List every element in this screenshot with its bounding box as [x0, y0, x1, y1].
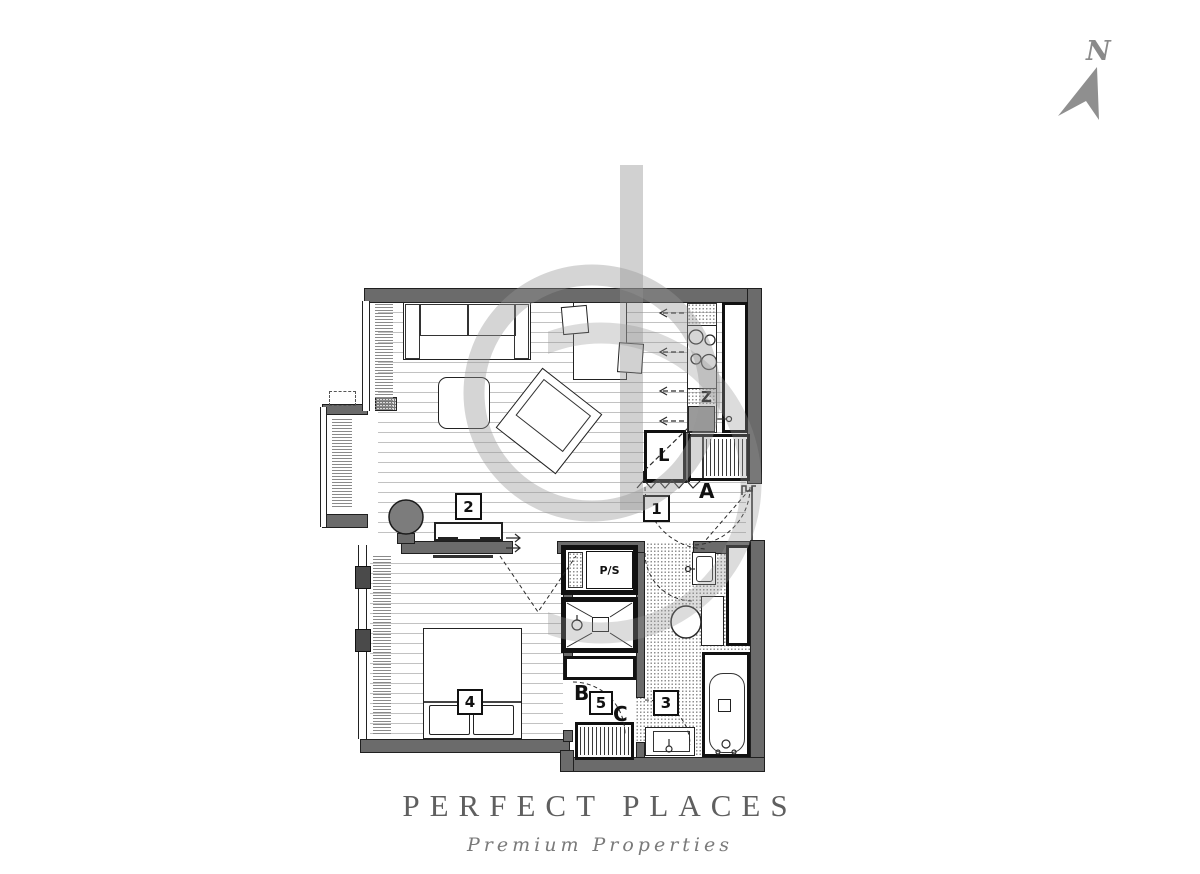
dining-chair	[561, 305, 589, 335]
bathtub-inner	[709, 673, 745, 753]
room-number: 2	[463, 498, 473, 516]
bath-washbasin-top-inner	[696, 556, 713, 582]
stove	[687, 325, 717, 389]
wall-right-lower	[750, 540, 765, 772]
sofa-cushion	[467, 304, 516, 336]
room-label-hallway: 1	[643, 495, 670, 522]
sofa-cushion	[420, 304, 469, 336]
room-label-living: 2	[455, 493, 482, 520]
room-label-bedroom: 4	[457, 689, 483, 715]
room-number: 3	[661, 694, 671, 712]
entry-door-jamb	[751, 487, 753, 540]
label-door-b: B	[574, 681, 589, 705]
room-number: 1	[651, 500, 661, 518]
bath-tall-cabinet	[726, 545, 750, 646]
wall-bedroom-column-stub	[563, 730, 573, 742]
inner-hall-cabinet	[564, 656, 636, 680]
entry-closet-hangers	[706, 439, 747, 476]
sofa-armrest-right	[514, 304, 529, 359]
bathtub-faucet-plate	[718, 699, 731, 712]
floor-plan-page: P/S	[0, 0, 1200, 874]
room-label-inner-hall: 5	[589, 691, 613, 715]
sliding-door-track	[480, 537, 500, 540]
ac-unit-dashed-box	[329, 391, 356, 406]
room-number: 4	[465, 693, 475, 711]
window-mullion	[355, 566, 371, 589]
inner-hall-radiator-fins	[580, 727, 629, 755]
label-fridge-l: L	[658, 445, 669, 466]
coffee-table	[438, 377, 490, 429]
room-number: 5	[596, 694, 606, 712]
label-door-a: A	[699, 479, 714, 503]
balcony-glazing-hatch	[332, 419, 352, 508]
entry-closet-divider	[702, 437, 704, 478]
wall-bottom-bedroom	[360, 739, 570, 753]
sofa-armrest-left	[405, 304, 420, 359]
bedroom-radiator-band	[373, 556, 391, 735]
living-window-wall	[362, 301, 370, 411]
label-sink-z: Z	[701, 388, 712, 406]
sliding-door-track	[438, 537, 458, 540]
window-mullion	[355, 629, 371, 652]
sliding-door-pocket-rail	[433, 555, 493, 558]
kitchen-tall-cabinet	[722, 302, 748, 433]
brand-tagline: Premium Properties	[0, 834, 1200, 856]
bath-washbasin-bottom-inner	[653, 731, 690, 752]
wall-step	[560, 750, 574, 772]
brand-name: PERFECT PLACES	[0, 788, 1200, 824]
pipe-shaft-hatch	[568, 552, 583, 588]
toilet-cistern	[701, 596, 724, 646]
living-radiator-band	[375, 304, 393, 412]
north-arrow-icon	[1040, 55, 1130, 135]
wall-column-bath-stub	[636, 742, 645, 758]
pipe-shaft-label-box: P/S	[586, 551, 633, 589]
room-label-bathroom: 3	[653, 690, 679, 716]
pipe-shaft-label: P/S	[599, 564, 619, 577]
balcony-wall-bottom	[322, 514, 368, 528]
label-door-c: C	[613, 702, 628, 726]
wall-living-bedroom	[401, 541, 513, 554]
dining-chair	[617, 342, 644, 374]
wall-top	[364, 288, 762, 303]
balcony-outer-edge	[320, 407, 327, 527]
column-wall-connector	[397, 533, 415, 544]
kitchen-sink	[688, 406, 715, 432]
shower-drain	[592, 617, 609, 632]
